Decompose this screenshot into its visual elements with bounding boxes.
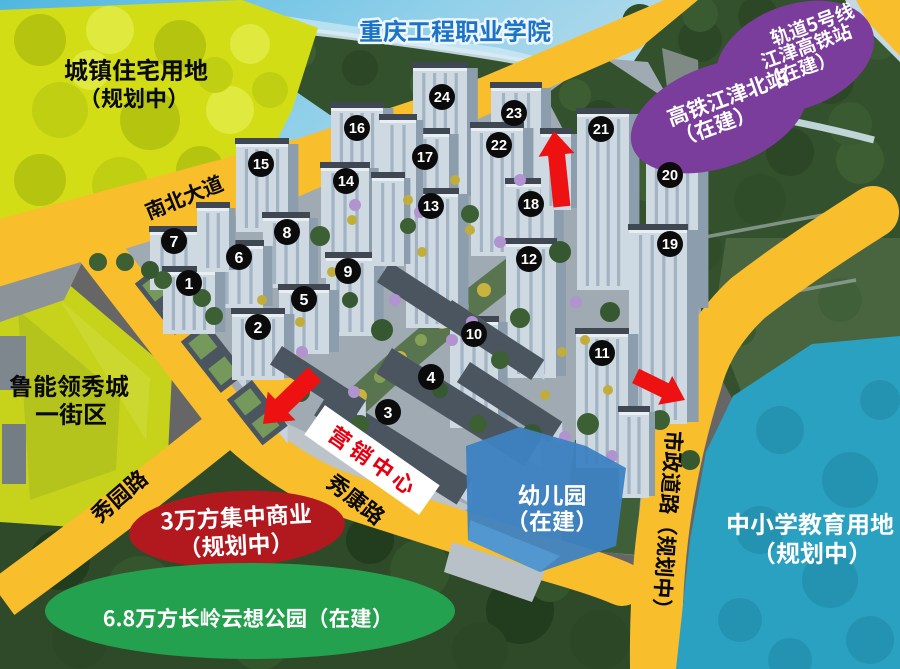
svg-text:11: 11 [594,346,609,362]
svg-text:20: 20 [662,168,678,184]
svg-text:22: 22 [491,138,507,154]
svg-text:6: 6 [235,250,244,267]
svg-text:16: 16 [349,121,365,137]
svg-text:12: 12 [521,252,537,268]
svg-text:23: 23 [506,106,522,122]
svg-text:21: 21 [593,122,609,138]
svg-text:13: 13 [423,199,439,215]
svg-text:3: 3 [384,405,393,422]
svg-text:15: 15 [253,157,269,173]
svg-text:10: 10 [466,327,482,343]
svg-text:5: 5 [300,292,309,309]
svg-text:19: 19 [662,237,678,253]
svg-text:1: 1 [185,276,194,293]
svg-text:17: 17 [417,150,433,166]
svg-text:4: 4 [427,370,436,387]
svg-text:7: 7 [170,234,179,251]
svg-text:8: 8 [283,225,292,242]
svg-text:9: 9 [344,264,353,281]
svg-text:24: 24 [434,90,450,106]
svg-text:18: 18 [523,197,539,213]
svg-text:14: 14 [338,174,354,190]
svg-text:2: 2 [254,320,263,337]
